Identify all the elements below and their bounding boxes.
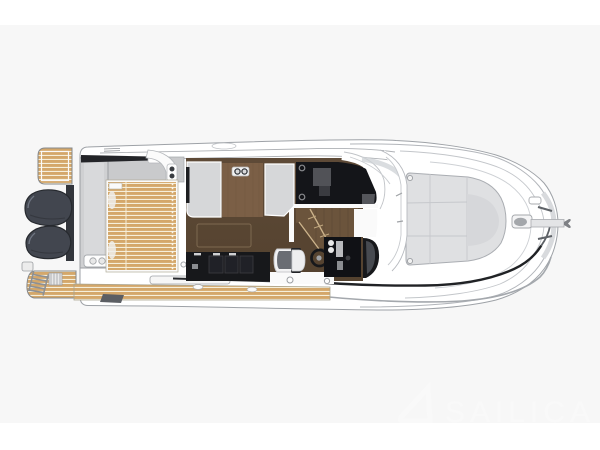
svg-text:SAILICA: SAILICA — [445, 396, 595, 429]
